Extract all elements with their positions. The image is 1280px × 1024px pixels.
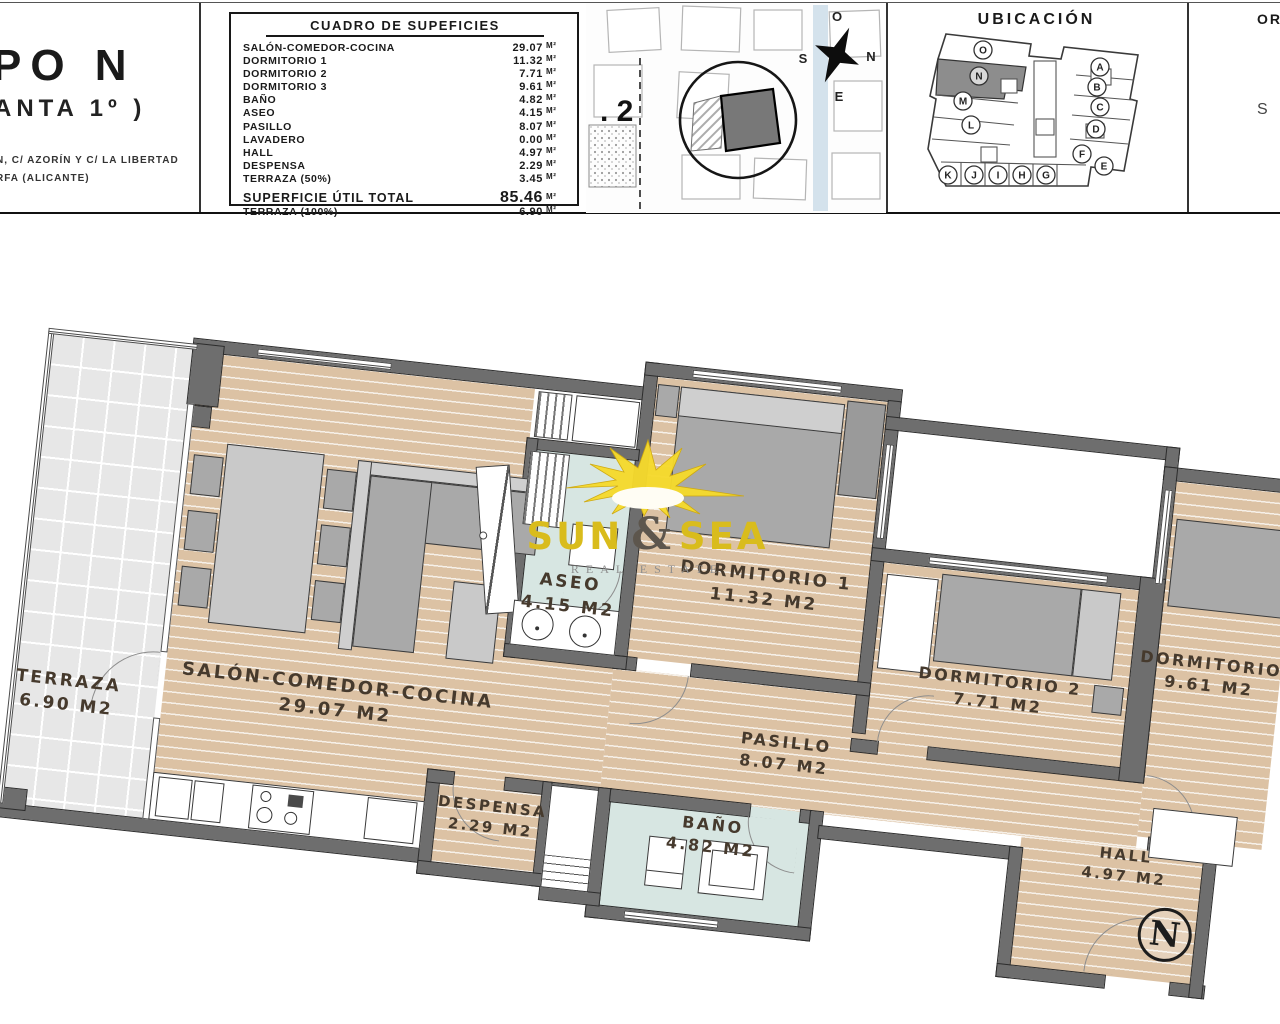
table-total-row: SUPERFICIE ÚTIL TOTAL85.46M² [243, 192, 567, 206]
chair [311, 580, 345, 623]
orientation-compass-letter: S [1257, 101, 1268, 119]
table-row: PASILLO8.07M² [243, 121, 567, 134]
table-row: BAÑO4.82M² [243, 94, 567, 107]
svg-text:L: L [968, 121, 974, 132]
svg-text:A: A [1096, 63, 1103, 74]
logo-ampersand: & [631, 509, 671, 560]
chair [190, 454, 224, 497]
sunburst-icon [548, 438, 748, 518]
orientation-panel: OR S [1187, 3, 1280, 212]
address-line: N, C/ AZORÍN Y C/ LA LIBERTAD [0, 155, 179, 166]
plot-number-label: . 2 [600, 95, 633, 128]
title-panel: PO N ANTA 1º ) N, C/ AZORÍN Y C/ LA LIBE… [0, 3, 199, 212]
table-row: HALL4.97M² [243, 147, 567, 160]
svg-text:F: F [1079, 150, 1085, 161]
orientation-title-fragment: OR [1257, 11, 1280, 27]
svg-text:S: S [799, 51, 808, 66]
table-terraza-row: TERRAZA (100%)6.90M² [243, 206, 567, 219]
svg-text:E: E [1101, 162, 1108, 173]
closet [877, 574, 939, 674]
door-knob [479, 531, 488, 540]
svg-text:E: E [835, 89, 844, 104]
dining-table [208, 444, 325, 634]
floor-plan: TERRAZA6.90 M2 SALÓN-COMEDOR-COCINA29.07… [0, 298, 1280, 1024]
kitchen-cabinet [363, 797, 417, 844]
chair [323, 469, 357, 512]
svg-text:N: N [975, 72, 982, 83]
plan-type-title: PO N [0, 41, 136, 91]
svg-text:H: H [1018, 171, 1025, 182]
svg-text:B: B [1093, 83, 1100, 94]
burner [260, 790, 272, 802]
table-row: SALÓN-COMEDOR-COCINA29.07M² [243, 42, 567, 55]
floor-plan-sheet: PO N ANTA 1º ) N, C/ AZORÍN Y C/ LA LIBE… [0, 0, 1280, 1024]
kitchen-sink [155, 776, 193, 819]
logo-subtitle: REAL ESTATE [545, 562, 750, 577]
chair [317, 524, 351, 567]
table-row: DORMITORIO 39.61M² [243, 81, 567, 94]
svg-text:O: O [832, 9, 842, 24]
kitchen-sink [190, 780, 224, 823]
site-map-panel: . 2 O N S E [586, 3, 886, 212]
logo-word: SUN [527, 515, 624, 558]
table-row: DORMITORIO 111.32M² [243, 55, 567, 68]
chair [184, 510, 218, 553]
plan-floor-subtitle: ANTA 1º ) [0, 95, 146, 123]
room-label-hall: HALL4.97 M2 [1080, 841, 1169, 892]
svg-text:O: O [979, 46, 987, 57]
header-band: PO N ANTA 1º ) N, C/ AZORÍN Y C/ LA LIBE… [0, 2, 1280, 214]
table-row: DORMITORIO 27.71M² [243, 68, 567, 81]
table-row: ASEO4.15M² [243, 107, 567, 120]
burner [287, 794, 303, 808]
bed [1167, 519, 1280, 619]
installation-shaft [534, 391, 573, 440]
table-row: LAVADERO0.00M² [243, 134, 567, 147]
table-row: TERRAZA (50%)3.45M² [243, 173, 567, 186]
svg-text:K: K [944, 171, 952, 182]
room-label-bano: BAÑO4.82 M2 [665, 810, 759, 864]
address-line: RFA (ALICANTE) [0, 173, 90, 184]
svg-text:G: G [1042, 171, 1050, 182]
ubicacion-panel: UBICACIÓN O [886, 3, 1187, 212]
nightstand [1091, 685, 1124, 716]
surface-table-panel: CUADRO DE SUPEFICIES SALÓN-COMEDOR-COCIN… [199, 3, 586, 212]
svg-text:I: I [997, 171, 1000, 182]
chair [178, 566, 212, 609]
burner [256, 806, 274, 824]
table-row: DESPENSA2.29M² [243, 160, 567, 173]
logo-word: SEA [679, 515, 769, 558]
svg-text:N: N [866, 49, 875, 64]
bed [933, 574, 1082, 677]
surface-table-title: CUADRO DE SUPEFICIES [266, 18, 545, 37]
svg-text:M: M [959, 97, 967, 108]
svg-text:C: C [1096, 103, 1103, 114]
surface-table: CUADRO DE SUPEFICIES SALÓN-COMEDOR-COCIN… [229, 12, 579, 206]
stove-hob [248, 785, 314, 835]
svg-text:D: D [1092, 125, 1099, 136]
svg-text:J: J [971, 171, 977, 182]
site-map: . 2 O N S E [586, 3, 886, 213]
sun-and-sea-logo: SUN & SEA REAL ESTATE [545, 438, 750, 577]
burner [284, 811, 298, 825]
nightstand [655, 384, 680, 418]
building-key-plan: O N M L A B C D F E K J I H G [886, 27, 1187, 207]
